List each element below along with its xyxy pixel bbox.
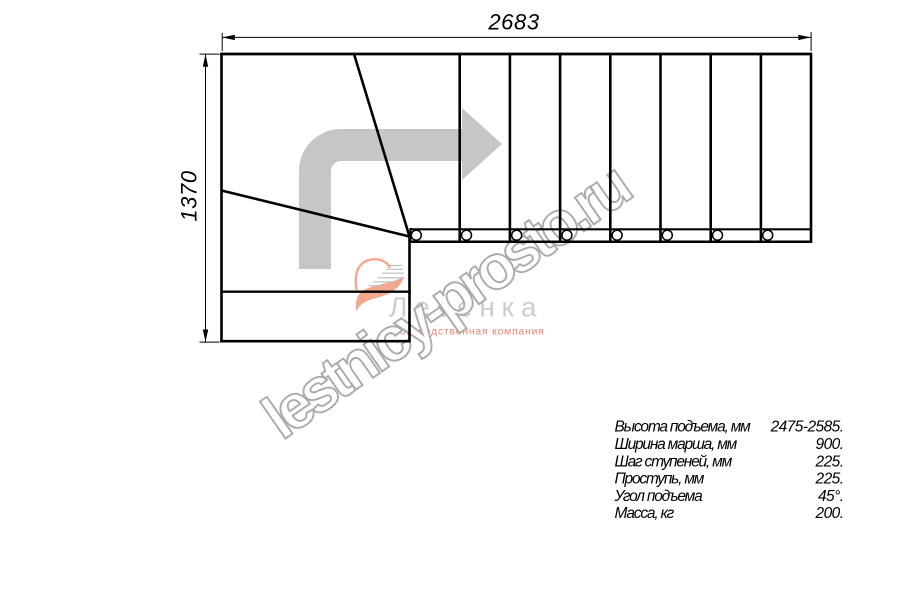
svg-text:900.: 900.	[816, 436, 844, 453]
svg-text:Проступь, мм: Проступь, мм	[615, 471, 705, 488]
svg-text:Высота подъема, мм: Высота подъема, мм	[615, 419, 752, 436]
svg-text:1370: 1370	[176, 170, 201, 222]
svg-text:2683: 2683	[487, 10, 540, 35]
svg-text:225.: 225.	[815, 471, 844, 488]
svg-text:Угол подъема: Угол подъема	[614, 488, 704, 505]
svg-text:45°.: 45°.	[818, 488, 844, 505]
svg-text:2475-2585.: 2475-2585.	[770, 419, 844, 436]
svg-text:200.: 200.	[815, 505, 844, 522]
svg-text:225.: 225.	[815, 453, 844, 470]
svg-text:Масса, кг: Масса, кг	[615, 505, 675, 522]
svg-text:Ширина марша, мм: Ширина марша, мм	[615, 436, 738, 453]
svg-text:Шаг ступеней, мм: Шаг ступеней, мм	[615, 453, 733, 470]
